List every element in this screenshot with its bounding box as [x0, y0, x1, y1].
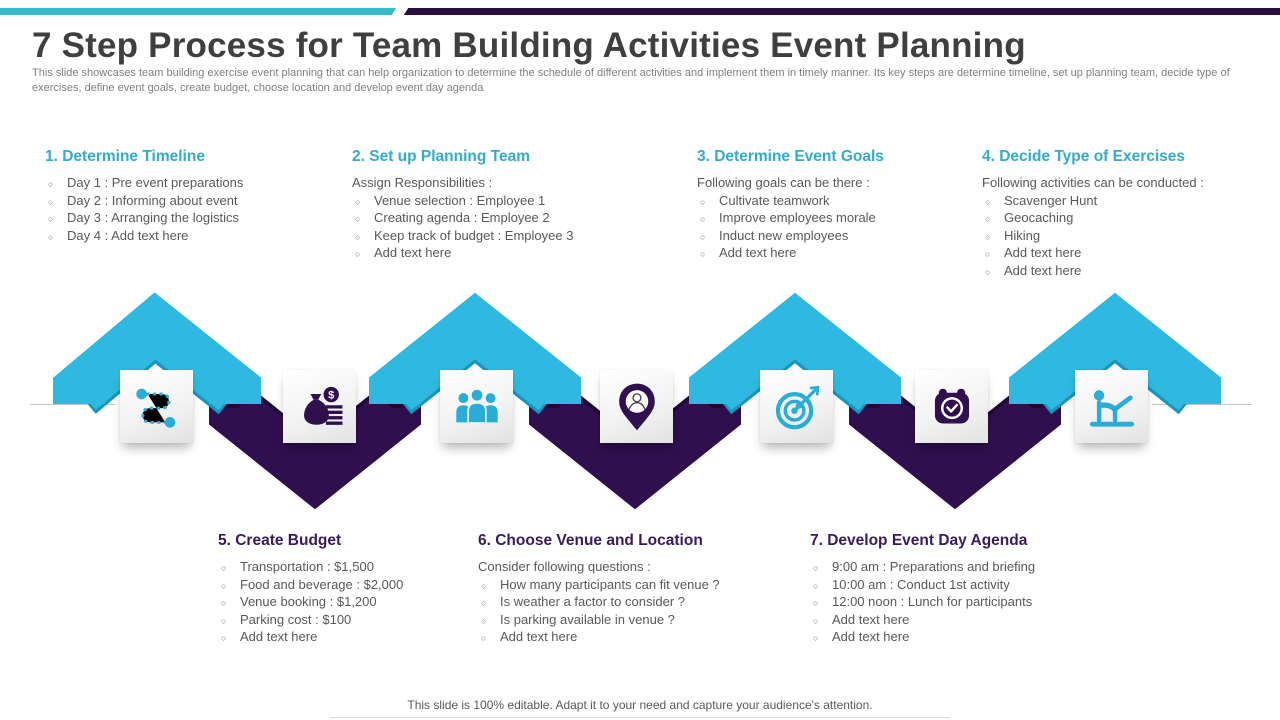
- step-item: Add text here: [218, 628, 488, 646]
- step-title: 5. Create Budget: [218, 532, 488, 550]
- route-timeline-icon: [131, 381, 183, 433]
- step-7-develop-event-day-agenda: 7. Develop Event Day Agenda 9:00 am : Pr…: [810, 532, 1120, 646]
- svg-text:$: $: [328, 389, 335, 401]
- step-item: 9:00 am : Preparations and briefing: [810, 558, 1120, 576]
- step-title: 4. Decide Type of Exercises: [982, 148, 1272, 166]
- step-item: Day 2 : Informing about event: [45, 192, 335, 210]
- step-intro: Consider following questions :: [478, 558, 798, 576]
- top-accent-bar-purple: [404, 8, 1280, 15]
- step-3-determine-event-goals: 3. Determine Event Goals Following goals…: [697, 148, 997, 262]
- step-item: Add text here: [982, 262, 1272, 280]
- step-item: Parking cost : $100: [218, 611, 488, 629]
- step-intro: Following activities can be conducted :: [982, 174, 1272, 192]
- page-title: 7 Step Process for Team Building Activit…: [32, 26, 1242, 66]
- step-item: Cultivate teamwork: [697, 192, 997, 210]
- money-bag-icon: $: [294, 381, 346, 433]
- step-item: Add text here: [478, 628, 798, 646]
- step-title: 1. Determine Timeline: [45, 148, 335, 166]
- target-icon: [770, 380, 824, 434]
- location-pin-icon: [610, 380, 664, 434]
- step-item: Is parking available in venue ?: [478, 611, 798, 629]
- step-list: How many participants can fit venue ? Is…: [478, 576, 798, 646]
- step-intro: Following goals can be there :: [697, 174, 997, 192]
- step-2-set-up-planning-team: 2. Set up Planning Team Assign Responsib…: [352, 148, 667, 262]
- step-5-create-budget: 5. Create Budget Transportation : $1,500…: [218, 532, 488, 646]
- step-list: Transportation : $1,500 Food and beverag…: [218, 558, 488, 646]
- step-item: Transportation : $1,500: [218, 558, 488, 576]
- step-item: Keep track of budget : Employee 3: [352, 227, 667, 245]
- step-item: Add text here: [810, 628, 1120, 646]
- step-icon-tile-7: [1075, 370, 1148, 443]
- top-accent-bar-teal: [0, 8, 396, 15]
- step-icon-tile-1: [120, 370, 193, 443]
- step-item: Venue booking : $1,200: [218, 593, 488, 611]
- step-title: 6. Choose Venue and Location: [478, 532, 798, 550]
- step-icon-tile-6: [915, 370, 988, 443]
- step-item: Day 4 : Add text here: [45, 227, 335, 245]
- step-item: How many participants can fit venue ?: [478, 576, 798, 594]
- step-item: Day 1 : Pre event preparations: [45, 174, 335, 192]
- step-6-choose-venue-and-location: 6. Choose Venue and Location Consider fo…: [478, 532, 798, 646]
- footer-divider: [330, 717, 950, 718]
- step-item: 10:00 am : Conduct 1st activity: [810, 576, 1120, 594]
- step-item: Scavenger Hunt: [982, 192, 1272, 210]
- step-item: Is weather a factor to consider ?: [478, 593, 798, 611]
- step-item: Add text here: [810, 611, 1120, 629]
- team-icon: [451, 381, 503, 433]
- step-item: Geocaching: [982, 209, 1272, 227]
- slide: 7 Step Process for Team Building Activit…: [0, 0, 1280, 720]
- calendar-clock-icon: [927, 382, 977, 432]
- step-list: 9:00 am : Preparations and briefing 10:0…: [810, 558, 1120, 646]
- slide-description: This slide showcases team building exerc…: [32, 66, 1237, 95]
- step-title: 2. Set up Planning Team: [352, 148, 667, 166]
- step-item: Food and beverage : $2,000: [218, 576, 488, 594]
- step-item: Day 3 : Arranging the logistics: [45, 209, 335, 227]
- step-icon-tile-2: $: [283, 370, 356, 443]
- step-list: Day 1 : Pre event preparations Day 2 : I…: [45, 174, 335, 244]
- step-list: Venue selection : Employee 1 Creating ag…: [352, 192, 667, 262]
- step-item: Add text here: [697, 244, 997, 262]
- step-item: Creating agenda : Employee 2: [352, 209, 667, 227]
- step-4-decide-type-of-exercises: 4. Decide Type of Exercises Following ac…: [982, 148, 1272, 279]
- step-title: 3. Determine Event Goals: [697, 148, 997, 166]
- step-item: 12:00 noon : Lunch for participants: [810, 593, 1120, 611]
- step-intro: Assign Responsibilities :: [352, 174, 667, 192]
- step-list: Cultivate teamwork Improve employees mor…: [697, 192, 997, 262]
- step-item: Add text here: [982, 244, 1272, 262]
- step-icon-tile-4: [600, 370, 673, 443]
- step-item: Hiking: [982, 227, 1272, 245]
- step-item: Venue selection : Employee 1: [352, 192, 667, 210]
- exercise-icon: [1085, 380, 1139, 434]
- step-item: Induct new employees: [697, 227, 997, 245]
- footer-note: This slide is 100% editable. Adapt it to…: [0, 698, 1280, 712]
- step-icon-tile-5: [760, 370, 833, 443]
- step-icon-tile-3: [440, 370, 513, 443]
- step-list: Scavenger Hunt Geocaching Hiking Add tex…: [982, 192, 1272, 280]
- step-item: Add text here: [352, 244, 667, 262]
- step-title: 7. Develop Event Day Agenda: [810, 532, 1120, 550]
- step-item: Improve employees morale: [697, 209, 997, 227]
- step-1-determine-timeline: 1. Determine Timeline Day 1 : Pre event …: [45, 148, 335, 244]
